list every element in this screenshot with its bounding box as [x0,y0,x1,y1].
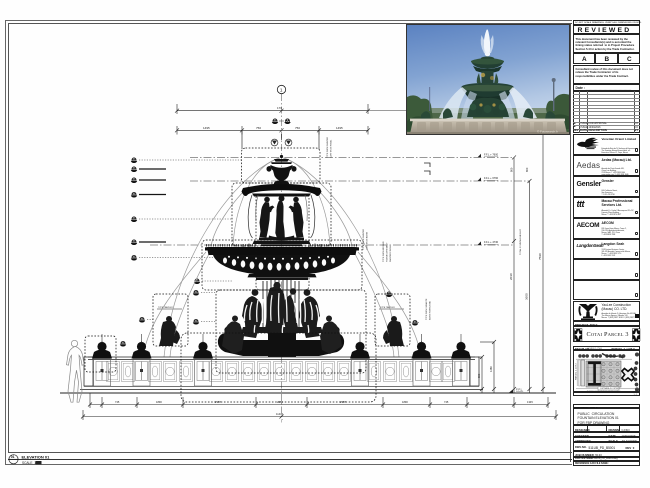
svg-text:F.F.L + 6760: F.F.L + 6760 [484,176,499,180]
svg-text:11434: 11434 [276,412,284,416]
svg-text:800: 800 [525,167,529,172]
svg-text:© Fotosearch.fr: © Fotosearch.fr [537,130,558,134]
svg-text:STATUE ASSEMBLY: STATUE ASSEMBLY [386,242,389,262]
svg-text:ELEVATION 01: ELEVATION 01 [22,454,51,459]
svg-text:170: 170 [277,106,282,110]
svg-text:ƒ: ƒ [281,419,283,423]
svg-text:1890: 1890 [156,400,162,404]
svg-text:2080: 2080 [277,400,283,404]
svg-text:-: - [11,461,12,465]
svg-text:2030: 2030 [509,273,513,280]
svg-text:TYPE FW04 GRANITE: TYPE FW04 GRANITE [425,298,428,320]
svg-text:1280: 1280 [489,366,493,372]
svg-text:1345: 1345 [527,400,533,404]
svg-text:TYPE FW02 PAINTED: TYPE FW02 PAINTED [326,137,329,158]
svg-text:1890: 1890 [402,400,408,404]
svg-text:F.F.L + 7600: F.F.L + 7600 [484,152,499,156]
svg-text:1495: 1495 [336,126,343,130]
svg-text:750: 750 [256,126,261,130]
svg-text:PAINTED FINISH: PAINTED FINISH [389,245,392,262]
svg-text:750: 750 [295,126,300,130]
svg-text:TOTAL FOUNTAIN HEIGHT: TOTAL FOUNTAIN HEIGHT [519,228,522,255]
svg-text:800: 800 [510,167,514,172]
svg-text:800: 800 [477,373,481,378]
svg-text:1495: 1495 [203,126,210,130]
svg-text:2978: 2978 [215,400,221,404]
svg-text:01: 01 [11,455,15,459]
svg-text:745: 745 [115,400,120,404]
svg-text:CAST IRON BASIN: CAST IRON BASIN [366,231,369,250]
svg-text:TYPE FW03 BRONZE: TYPE FW03 BRONZE [383,241,385,262]
svg-text:TYPE FW02 PAINTED: TYPE FW02 PAINTED [362,229,365,250]
svg-text:BASIN SURROUND: BASIN SURROUND [429,301,432,320]
svg-text:745: 745 [444,400,449,404]
svg-text:F.F.L.: F.F.L. [516,388,523,392]
svg-text:TYPE TBA*FGR: TYPE TBA*FGR [380,306,395,309]
svg-text:TYPE TBA*FGR: TYPE TBA*FGR [158,306,173,309]
svg-text:1: 1 [280,88,283,93]
svg-text:CAST IRON FINIAL: CAST IRON FINIAL [330,139,333,158]
svg-text:3600: 3600 [525,293,529,300]
svg-text:2978: 2978 [340,400,346,404]
svg-text:7590: 7590 [538,253,542,260]
svg-text:F.F.L + 4730: F.F.L + 4730 [484,240,499,244]
